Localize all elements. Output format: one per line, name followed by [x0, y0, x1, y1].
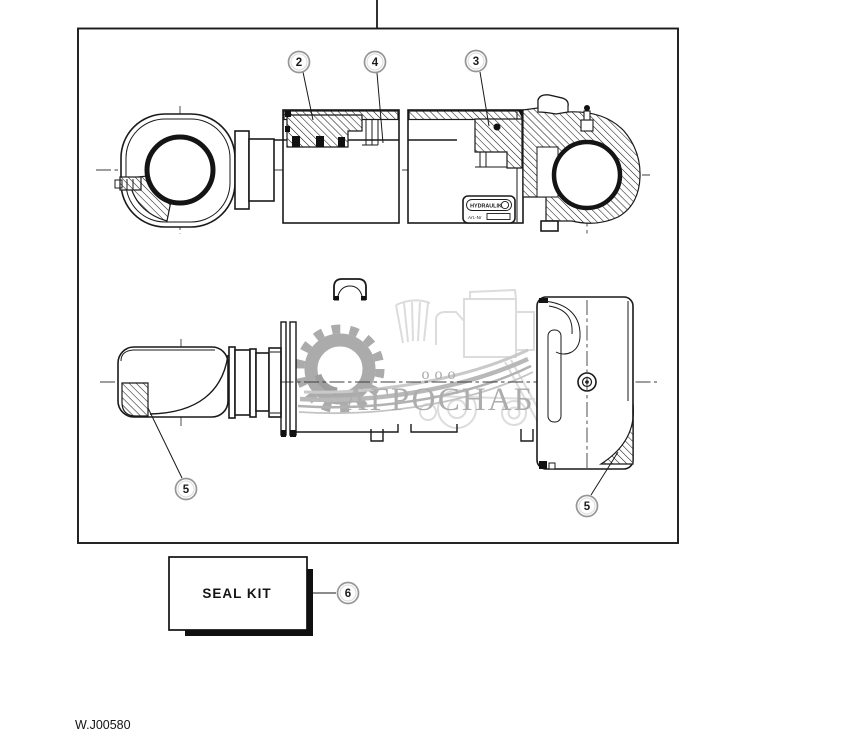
assembled-cylinder-view: HYDRAULIK Art.-Nr — [96, 95, 650, 236]
watermark: ооо АГРОСНАБ — [298, 290, 546, 428]
base-eye-side — [537, 297, 633, 469]
watermark-company-name: АГРОСНАБ — [344, 382, 535, 418]
nameplate-brand: HYDRAULIK — [470, 203, 502, 209]
base-eye-front — [523, 95, 640, 231]
rod-eye-side — [118, 347, 228, 417]
wiper-seal-part — [334, 279, 366, 301]
callout-3-label: 3 — [473, 56, 479, 68]
callout-4-label: 4 — [372, 57, 379, 69]
seal-kit-label: SEAL KIT — [202, 586, 271, 601]
watermark-org-form: ооо — [422, 366, 461, 383]
callout-6[interactable]: 6 — [313, 583, 359, 604]
callout-5-left[interactable]: 5 — [148, 408, 197, 500]
rod-collar — [235, 131, 249, 209]
rod-collar-2 — [249, 139, 274, 201]
seal-kit-box[interactable]: SEAL KIT — [169, 557, 313, 636]
nameplate-art-label: Art.-Nr — [468, 215, 482, 220]
callout-6-label: 6 — [345, 588, 351, 600]
callout-5-left-label: 5 — [183, 484, 190, 496]
rod-neck-rings — [229, 347, 281, 418]
parts-diagram-page: ооо АГРОСНАБ — [0, 0, 841, 731]
drawing-number: W.J00580 — [75, 718, 131, 731]
barrel-left-section — [274, 110, 399, 223]
rod-eye-front — [115, 114, 235, 227]
tube-outline — [296, 424, 533, 441]
callout-5-right-label: 5 — [584, 501, 591, 513]
nameplate: HYDRAULIK Art.-Nr — [463, 196, 515, 223]
callout-2-label: 2 — [296, 57, 302, 69]
